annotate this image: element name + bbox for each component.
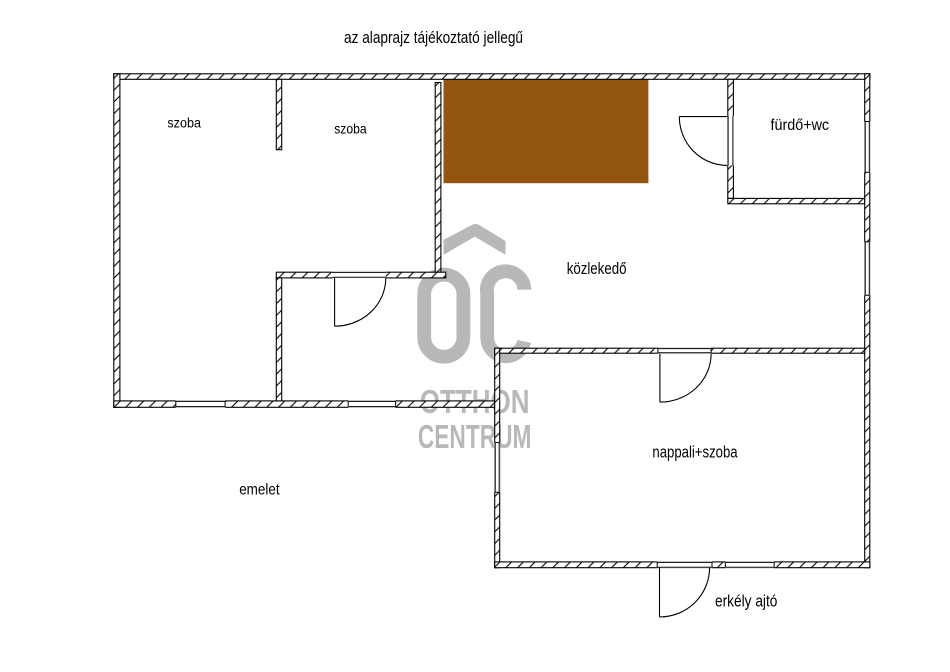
svg-text:erkély ajtó: erkély ajtó xyxy=(715,592,777,611)
svg-text:közlekedő: közlekedő xyxy=(567,259,627,278)
svg-text:fürdő+wc: fürdő+wc xyxy=(771,117,830,134)
svg-text:emelet: emelet xyxy=(239,481,280,498)
svg-text:CENTRUM: CENTRUM xyxy=(418,418,532,455)
svg-text:szoba: szoba xyxy=(334,121,367,137)
svg-text:az alaprajz tájékoztató jelleg: az alaprajz tájékoztató jellegű xyxy=(344,28,523,47)
svg-text:szoba: szoba xyxy=(167,114,201,130)
svg-text:nappali+szoba: nappali+szoba xyxy=(652,443,738,462)
